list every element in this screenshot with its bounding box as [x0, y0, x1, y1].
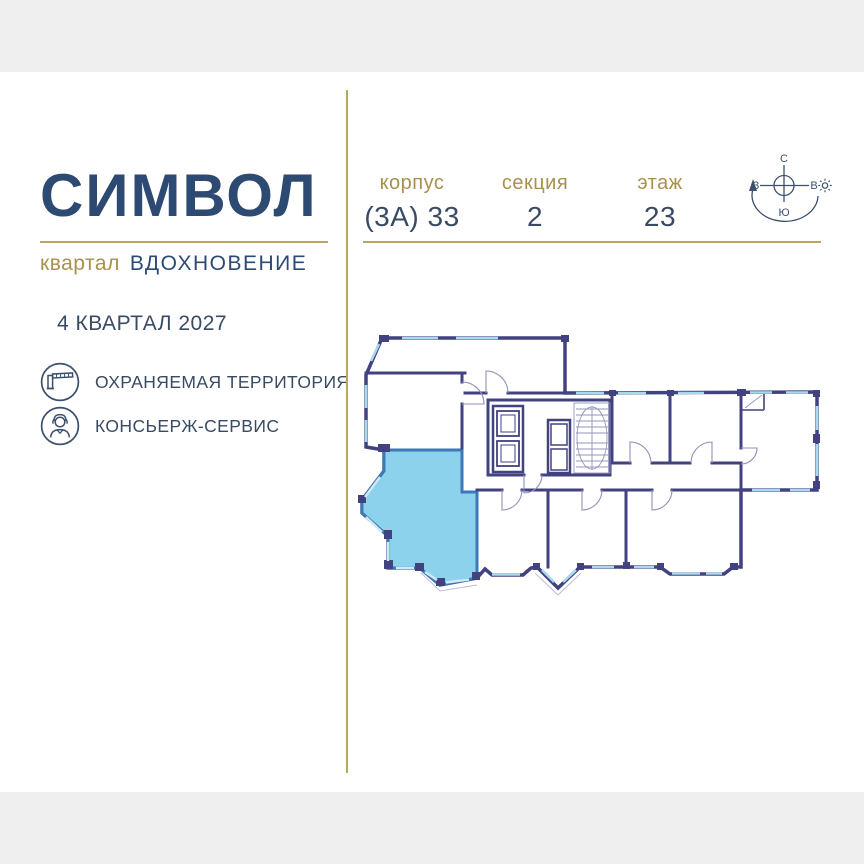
floor-plan: [352, 330, 850, 600]
feature-concierge: КОНСЬЕРЖ-СЕРВИС: [40, 406, 279, 446]
building-label: корпус: [352, 172, 472, 195]
header-floor: этаж 23: [600, 172, 720, 233]
barrier-icon: [40, 362, 80, 402]
quarter-prefix: квартал: [40, 252, 120, 276]
floor-label: этаж: [600, 172, 720, 195]
feature-label: ОХРАНЯЕМАЯ ТЕРРИТОРИЯ: [95, 372, 349, 393]
compass-west: З: [753, 180, 760, 192]
letterbox-top: [0, 0, 864, 72]
compass-rose: С Ю З В: [745, 152, 845, 224]
header-underline: [363, 241, 821, 243]
listing-card: { "brand": { "logo": "СИМВОЛ", "sub_pref…: [0, 0, 864, 864]
feature-label: КОНСЬЕРЖ-СЕРВИС: [95, 416, 279, 437]
logo-underline: [40, 241, 328, 243]
header-building: корпус (3А) 33: [352, 172, 472, 233]
feature-guarded-territory: ОХРАНЯЕМАЯ ТЕРРИТОРИЯ: [40, 362, 349, 402]
card-canvas: СИМВОЛ квартал ВДОХНОВЕНИЕ 4 КВАРТАЛ 202…: [0, 72, 864, 792]
compass-south: Ю: [778, 207, 789, 219]
header-section: секция 2: [475, 172, 595, 233]
building-value: (3А) 33: [352, 201, 472, 233]
sun-icon: [818, 179, 831, 192]
vertical-divider: [346, 90, 348, 773]
brand-logo: СИМВОЛ: [40, 166, 318, 226]
completion-date: 4 КВАРТАЛ 2027: [57, 312, 227, 336]
quarter-name: ВДОХНОВЕНИЕ: [130, 252, 307, 276]
section-label: секция: [475, 172, 595, 195]
brand-subtitle: квартал ВДОХНОВЕНИЕ: [40, 252, 307, 276]
section-value: 2: [475, 201, 595, 233]
floor-value: 23: [600, 201, 720, 233]
compass-east: В: [810, 180, 817, 192]
letterbox-bottom: [0, 792, 864, 864]
concierge-icon: [40, 406, 80, 446]
compass-north: С: [780, 153, 788, 165]
